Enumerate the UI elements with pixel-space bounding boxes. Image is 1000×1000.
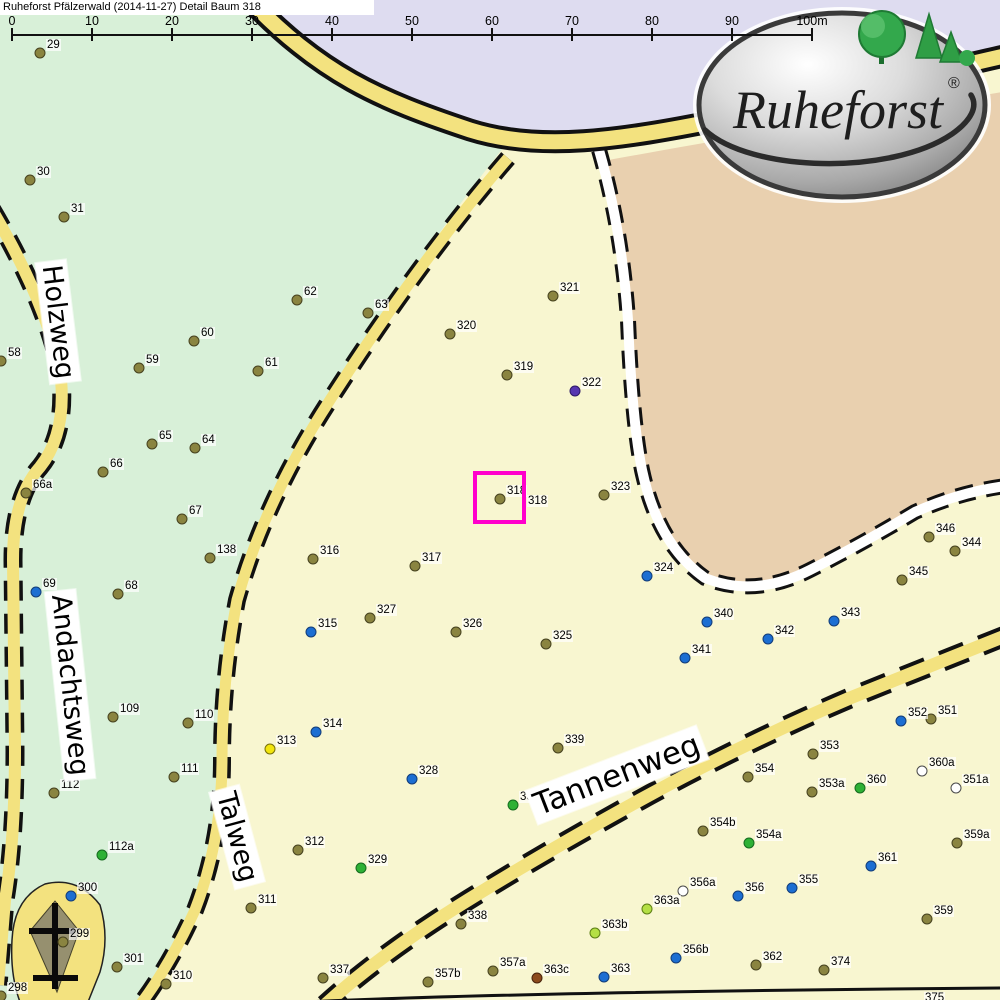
street-label-tannenweg: Tannenweg xyxy=(525,725,709,824)
scale-tick-label: 0 xyxy=(9,14,16,28)
scale-tick xyxy=(651,28,653,41)
street-label-holzweg: Holzweg xyxy=(35,259,81,384)
scale-tick-label: 90 xyxy=(725,14,739,28)
map-canvas[interactable]: 29303158596061626364656666a6768691091101… xyxy=(0,0,1000,1000)
scale-tick-label: 80 xyxy=(645,14,659,28)
scale-tick-label: 60 xyxy=(485,14,499,28)
scale-tick xyxy=(331,28,333,41)
scale-tick xyxy=(411,28,413,41)
scale-tick xyxy=(811,28,813,41)
logo-wordmark: Ruheforst xyxy=(732,80,945,140)
scale-tick xyxy=(91,28,93,41)
street-label-talweg: Talweg xyxy=(209,785,265,890)
scale-tick xyxy=(171,28,173,41)
scale-tick xyxy=(251,28,253,41)
scale-tick-label: 70 xyxy=(565,14,579,28)
map-title: Ruheforst Pfälzerwald (2014-11-27) Detai… xyxy=(0,0,374,15)
scale-tick-label: 10 xyxy=(85,14,99,28)
scale-tick-label: 50 xyxy=(405,14,419,28)
scale-tick-label: 40 xyxy=(325,14,339,28)
scale-tick xyxy=(571,28,573,41)
scale-tick xyxy=(491,28,493,41)
scale-tick-label: 100m xyxy=(796,14,827,28)
logo-registered-mark: ® xyxy=(948,75,960,92)
scale-tick-label: 20 xyxy=(165,14,179,28)
street-label-andachtsweg: Andachtsweg xyxy=(45,589,96,781)
scale-tick xyxy=(11,28,13,41)
scale-tick xyxy=(731,28,733,41)
selected-tree-highlight-box xyxy=(473,471,526,524)
scale-tick-label: 30 xyxy=(245,14,259,28)
